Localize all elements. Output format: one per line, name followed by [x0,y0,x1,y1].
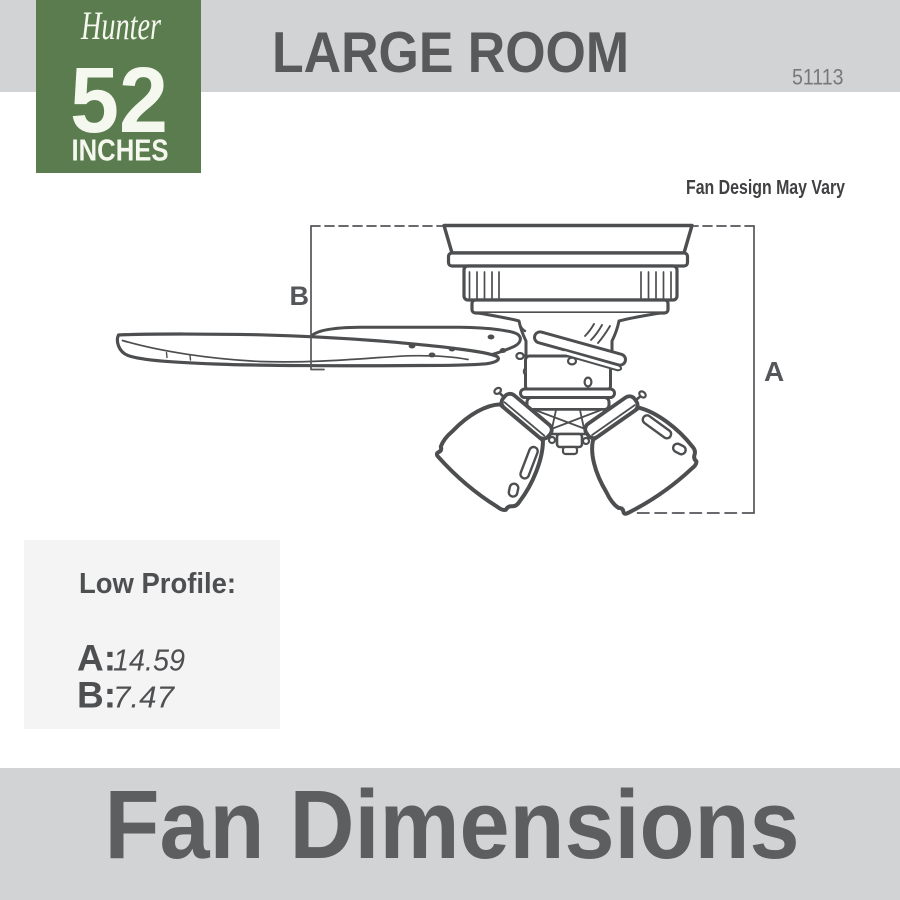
svg-text:B: B [290,281,310,311]
svg-text:A: A [764,356,784,387]
